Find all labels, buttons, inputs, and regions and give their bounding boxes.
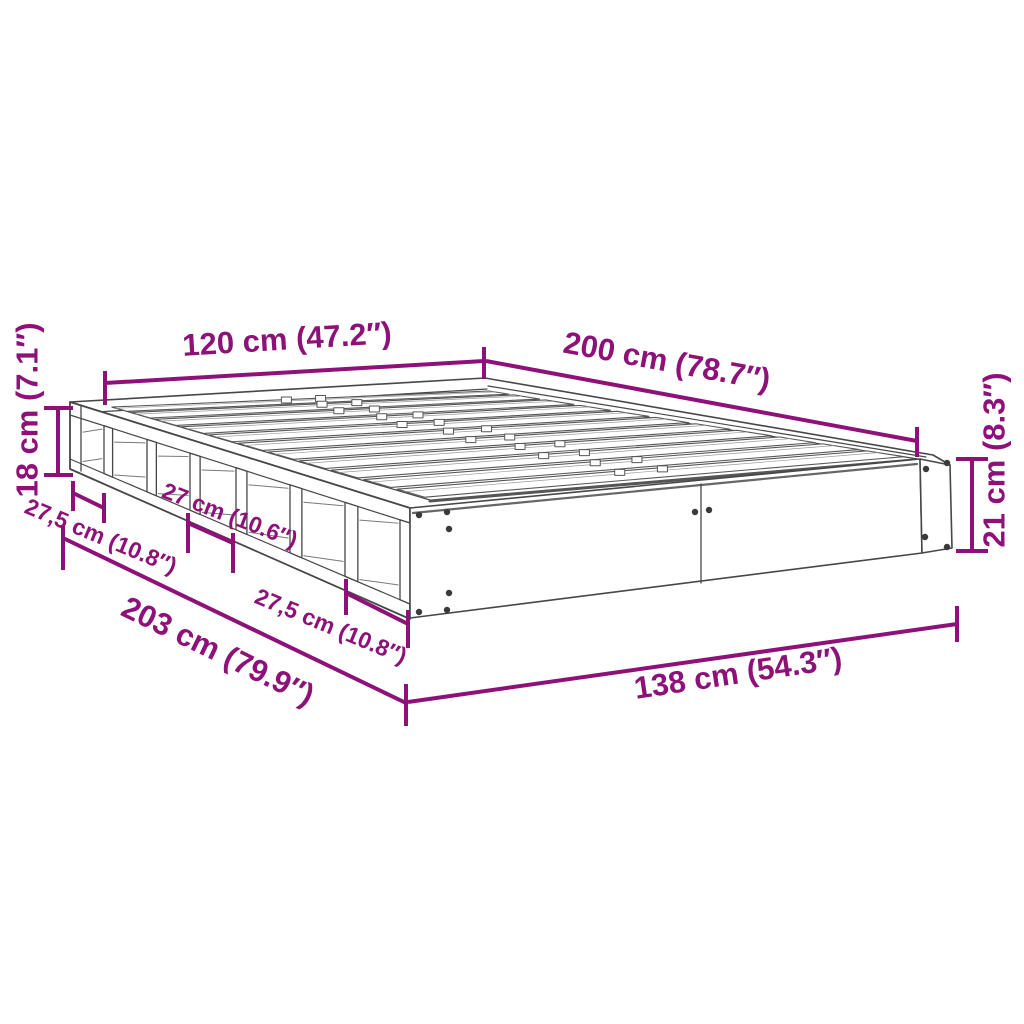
dim-height-front-label: 21 cm (8.3″) [977, 372, 1012, 547]
dim-height-side-line [44, 408, 73, 475]
product-dimension-diagram: 120 cm (47.2″) 200 cm (78.7″) 18 cm (7.1… [0, 0, 1024, 1024]
dim-width-bottom-label: 138 cm (54.3″) [632, 640, 844, 706]
dim-height-front: 21 cm (8.3″) [956, 372, 1012, 551]
dim-width-bottom: 138 cm (54.3″) [408, 606, 957, 706]
dim-length-top-label: 200 cm (78.7″) [561, 325, 773, 398]
dim-height-side-label: 18 cm (7.1″) [10, 322, 45, 497]
dim-height-side: 18 cm (7.1″) [10, 322, 74, 497]
dim-width-top-label: 120 cm (47.2″) [181, 315, 392, 363]
bed-frame-dimension-diagram: 120 cm (47.2″) 200 cm (78.7″) 18 cm (7.1… [0, 0, 1024, 1024]
